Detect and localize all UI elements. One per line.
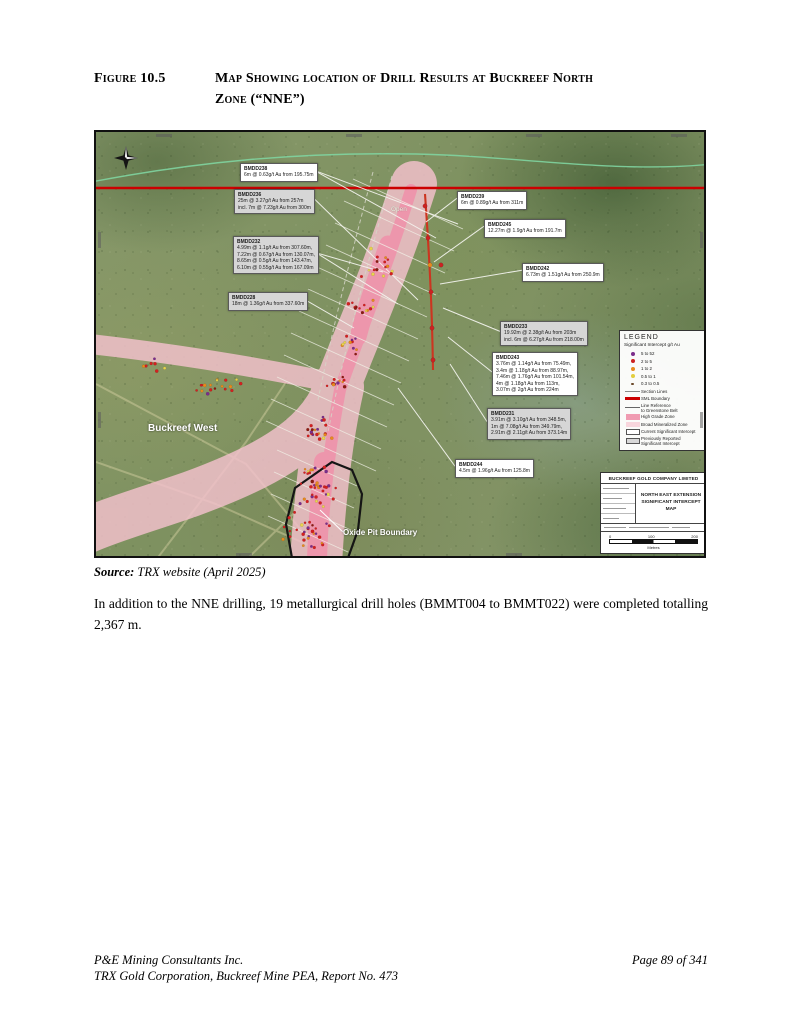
callout-hole-id: BMDD238 — [244, 166, 314, 172]
legend-item: 0.5 to 1 — [624, 373, 703, 381]
callout-intercept: 6.73m @ 1.51g/t Au from 250.9m — [526, 272, 600, 278]
callout-intercept: 3.07m @ 2g/t Au from 224m — [496, 387, 574, 393]
callout-hole-id: BMDD239 — [461, 194, 523, 200]
callout-BMDD231: BMDD2313.91m @ 3.10g/t Au from 348.5m,1m… — [487, 408, 571, 440]
callout-intercept: 12.27m @ 1.9g/t Au from 191.7m — [488, 228, 562, 234]
legend-item: 2 to 5 — [624, 358, 703, 366]
legend-swatch-dot — [624, 359, 641, 363]
callout-hole-id: BMDD236 — [238, 192, 311, 198]
callout-intercept: incl. 7m @ 7.23g/t Au from 300m — [238, 205, 311, 211]
legend-label: Previously Reported Significant Intercep… — [641, 436, 681, 447]
legend-label: Section Lines — [641, 389, 667, 394]
map-label-buckreef-west: Buckreef West — [148, 423, 217, 434]
legend-swatch-box-gray — [624, 438, 641, 444]
figure-title-line2: Zone (“NNE”) — [215, 92, 305, 107]
callout-BMDD243: BMDD2433.76m @ 1.14g/t Au from 75.49m,3.… — [492, 352, 578, 396]
figure-title-line1: Map Showing location of Drill Results at… — [215, 71, 593, 86]
coordinate-tick — [506, 553, 522, 556]
callout-intercept: 6.10m @ 0.55g/t Au from 167.09m — [237, 265, 315, 271]
legend-swatch-box-white — [624, 429, 641, 435]
callout-intercept: 6m @ 0.89g/t Au from 311m — [461, 200, 523, 206]
legend-label: Line Reference to Greenstone Belt — [641, 403, 678, 414]
coordinate-tick — [236, 553, 252, 556]
callout-intercept: 25m @ 3.27g/t Au from 257m — [238, 198, 311, 204]
titleblock-field — [601, 514, 635, 523]
legend-swatch-line-thin — [624, 407, 641, 408]
callout-intercept: 18m @ 1.36g/t Au from 337.60m — [232, 301, 304, 307]
legend-swatch-dot — [624, 352, 641, 356]
legend-label: 5 to 52 — [641, 351, 654, 356]
titleblock-field — [601, 494, 635, 504]
coordinate-tick — [671, 134, 687, 137]
callout-hole-id: BMDD243 — [496, 355, 574, 361]
titleblock-map-title: NORTH EAST EXTENSION SIGNIFICANT INTERCE… — [636, 484, 706, 523]
figure-caption: Figure 10.5 Map Showing location of Dril… — [94, 68, 708, 110]
legend-swatch-line-thick — [624, 397, 641, 400]
legend-item: Section Lines — [624, 388, 703, 396]
map-title-block: BUCKREEF GOLD COMPANY LIMITED NORTH EAST… — [600, 472, 706, 554]
footer-report: TRX Gold Corporation, Buckreef Mine PEA,… — [94, 968, 708, 984]
coordinate-tick — [346, 134, 362, 137]
source-line: Source: TRX website (April 2025) — [94, 565, 266, 580]
titleblock-fields — [601, 484, 636, 523]
callout-hole-id: BMDD228 — [232, 295, 304, 301]
drill-trace-line — [425, 194, 433, 370]
legend-swatch-area — [624, 414, 641, 420]
callout-intercept: 6m @ 0.63g/t Au from 195.75m — [244, 172, 314, 178]
compass-icon — [114, 146, 138, 170]
titleblock-map-title-line2: SIGNIFICANT INTERCEPT MAP — [638, 500, 704, 513]
callout-hole-id: BMDD232 — [237, 239, 315, 245]
legend-title: LEGEND — [624, 334, 703, 341]
legend-label: SML Boundary — [641, 396, 670, 401]
legend-item: 5 to 52 — [624, 350, 703, 358]
coordinate-tick — [526, 134, 542, 137]
legend-item: 0.3 to 0.5 — [624, 380, 703, 388]
legend-items: 5 to 522 to 51 to 20.5 to 10.3 to 0.5Sec… — [624, 350, 703, 446]
callout-hole-id: BMDD233 — [504, 324, 584, 330]
legend-swatch-dot — [624, 367, 641, 371]
callout-intercept: 4.5m @ 1.96g/t Au from 125.8m — [459, 468, 530, 474]
callout-intercept: 3.76m @ 1.14g/t Au from 75.49m, — [496, 361, 574, 367]
titleblock-scalebar: 0100200 Metres — [601, 532, 706, 553]
titleblock-main: NORTH EAST EXTENSION SIGNIFICANT INTERCE… — [601, 484, 706, 524]
source-text: TRX website (April 2025) — [134, 565, 265, 579]
scalebar-tick: 100 — [648, 534, 655, 539]
coordinate-tick — [98, 232, 101, 248]
scalebar-unit: Metres — [609, 545, 698, 550]
callout-hole-id: BMDD242 — [526, 266, 600, 272]
legend-swatch-area — [624, 422, 641, 428]
legend-label: 1 to 2 — [641, 366, 652, 371]
map-label-oxide-pit-boundary: Oxide Pit Boundary — [343, 528, 417, 537]
legend-item: 1 to 2 — [624, 365, 703, 373]
legend-item: High Grade Zone — [624, 413, 703, 421]
legend-label: High Grade Zone — [641, 414, 675, 419]
source-prefix: Source: — [94, 565, 134, 579]
legend-label: 2 to 5 — [641, 359, 652, 364]
callout-BMDD228: BMDD22818m @ 1.36g/t Au from 337.60m — [228, 292, 308, 311]
legend-swatch-dot-small — [624, 383, 641, 386]
legend-item: Previously Reported Significant Intercep… — [624, 436, 703, 447]
callout-BMDD242: BMDD2426.73m @ 1.51g/t Au from 250.9m — [522, 263, 604, 282]
legend-swatch-line-thin — [624, 391, 641, 392]
legend-item: Broad Mineralized Zone — [624, 421, 703, 429]
legend-subtitle: Significant Intercept g/t Au — [624, 343, 703, 348]
legend-item: SML Boundary — [624, 395, 703, 403]
map-legend: LEGEND Significant Intercept g/t Au 5 to… — [619, 330, 706, 451]
body-paragraph: In addition to the NNE drilling, 19 meta… — [94, 594, 708, 636]
callout-BMDD232: BMDD2324.99m @ 1.1g/t Au from 307.60m,7.… — [233, 236, 319, 274]
footer-page-number: Page 89 of 341 — [632, 952, 708, 968]
callout-hole-id: BMDD245 — [488, 222, 562, 228]
legend-label: Broad Mineralized Zone — [641, 422, 688, 427]
report-page: Figure 10.5 Map Showing location of Dril… — [0, 0, 800, 1035]
coordinate-tick — [700, 232, 703, 248]
footer-company: P&E Mining Consultants Inc. — [94, 952, 708, 968]
legend-label: Current Significant Intercept — [641, 429, 695, 434]
map-label-open: Open — [391, 206, 407, 213]
legend-item: Current Significant Intercept — [624, 428, 703, 436]
scalebar — [609, 539, 698, 544]
legend-swatch-dot — [624, 374, 641, 378]
callout-intercept: incl. 6m @ 6.27g/t Au from 218.00m — [504, 337, 584, 343]
callout-intercept: 7.46m @ 1.76g/t Au from 101.54m, — [496, 374, 574, 380]
coordinate-tick — [700, 412, 703, 428]
legend-item: Line Reference to Greenstone Belt — [624, 403, 703, 414]
callout-BMDD236: BMDD23625m @ 3.27g/t Au from 257mincl. 7… — [234, 189, 315, 214]
titleblock-field — [601, 484, 635, 494]
callout-hole-id: BMDD231 — [491, 411, 567, 417]
titleblock-company: BUCKREEF GOLD COMPANY LIMITED — [601, 473, 706, 484]
drill-results-map: Open Buckreef West Oxide Pit Boundary BM… — [94, 130, 706, 558]
callout-intercept: 19.92m @ 2.38g/t Au from 203m — [504, 330, 584, 336]
legend-label: 0.3 to 0.5 — [641, 381, 659, 386]
legend-label: 0.5 to 1 — [641, 374, 656, 379]
titleblock-info-row — [601, 524, 706, 532]
callout-hole-id: BMDD244 — [459, 462, 530, 468]
callout-BMDD245: BMDD24512.27m @ 1.9g/t Au from 191.7m — [484, 219, 566, 238]
scalebar-tick: 200 — [691, 534, 698, 539]
callout-intercept: 2.91m @ 2.11g/t Au from 373.14m — [491, 430, 567, 436]
callout-BMDD244: BMDD2444.5m @ 1.96g/t Au from 125.8m — [455, 459, 534, 478]
page-footer: P&E Mining Consultants Inc. TRX Gold Cor… — [94, 952, 708, 985]
callout-BMDD238: BMDD2386m @ 0.63g/t Au from 195.75m — [240, 163, 318, 182]
callout-BMDD233: BMDD23319.92m @ 2.38g/t Au from 203mincl… — [500, 321, 588, 346]
coordinate-tick — [98, 412, 101, 428]
figure-label: Figure 10.5 — [94, 68, 215, 110]
callout-BMDD239: BMDD2396m @ 0.89g/t Au from 311m — [457, 191, 527, 210]
callout-intercept: 8.65m @ 0.5g/t Au from 143.47m, — [237, 258, 315, 264]
figure-title: Map Showing location of Drill Results at… — [215, 68, 708, 110]
scalebar-tick: 0 — [609, 534, 611, 539]
titleblock-field — [601, 504, 635, 514]
callout-intercept: 3.91m @ 3.10g/t Au from 348.5m, — [491, 417, 567, 423]
coordinate-tick — [156, 134, 172, 137]
callout-intercept: 4.99m @ 1.1g/t Au from 307.60m, — [237, 245, 315, 251]
